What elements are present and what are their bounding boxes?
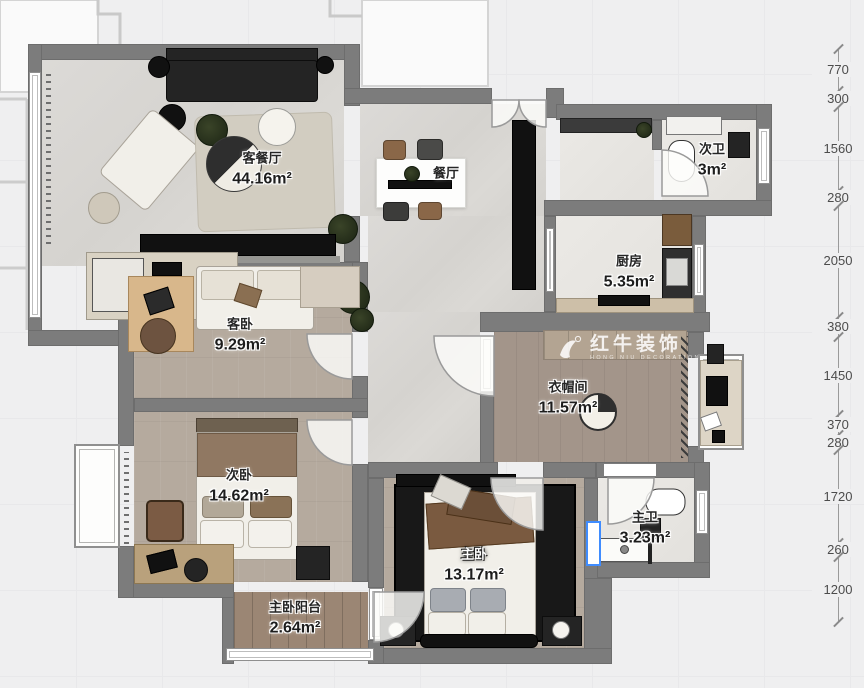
dimension-label: 1560 [812,141,864,156]
room-label-guest-bedroom: 客卧 9.29m² [215,314,266,355]
dimension-tick [833,332,844,343]
dimension-label: 260 [812,542,864,557]
wall[interactable] [352,464,368,582]
room-name: 客卧 [227,314,253,333]
room-label-kitchen: 厨房 5.35m² [604,251,655,292]
toilet[interactable] [668,140,695,182]
wall[interactable] [543,462,596,478]
dining-chair[interactable] [383,202,409,221]
room-name: 主卧阳台 [269,597,321,616]
plant[interactable] [350,308,374,332]
room-label-master-bedroom: 主卧 13.17m² [444,544,504,585]
desk-chair[interactable] [707,344,724,364]
room-name: 衣帽间 [548,377,587,396]
pouf[interactable] [88,192,120,224]
pillow [468,612,506,636]
dimension-tick [833,85,844,96]
pillow [428,612,466,636]
dimension-label: 1200 [812,582,864,597]
dimension-label: 370 [812,417,864,432]
wall[interactable] [480,312,710,332]
selected-door-leaf[interactable] [586,521,601,566]
window[interactable] [29,72,41,318]
armchair[interactable] [146,500,184,542]
dimension-tick [833,101,844,112]
room-name: 餐厅 [433,163,459,182]
pillow [470,588,506,612]
brand-name: 红牛装饰 [590,335,701,354]
neighbor-outline [0,99,27,330]
room-label-living-dining: 客餐厅 44.16m² [232,148,292,189]
room-name: 主卫 [632,507,658,526]
room-area: 5.35m² [604,274,655,292]
dimension-tick [833,552,844,563]
cooktop[interactable] [598,295,650,306]
room-area: 3.23m² [620,530,671,548]
shower-fixture[interactable] [728,132,750,158]
dimension-label: 380 [812,319,864,334]
room-area: 2.64m² [270,620,321,638]
room-label-dining: 餐厅 [433,163,459,182]
dining-chair[interactable] [418,202,442,220]
brand-subtitle: HONG NIU DECORATION [590,356,701,362]
dining-chair[interactable] [383,140,406,160]
neighbor-outline [98,0,120,46]
dimension-tick [833,617,844,628]
room-name: 主卧 [461,544,487,563]
bed-bench[interactable] [420,634,538,648]
room-name: 厨房 [616,251,642,270]
ottoman[interactable] [258,108,296,146]
brand-bull-logo-icon [556,333,586,363]
dimension-line [838,49,839,622]
door-leaf[interactable] [480,336,494,392]
dining-chair[interactable] [417,139,443,160]
pendant-lamp[interactable] [316,56,334,74]
room-name: 次卧 [226,465,252,484]
wall[interactable] [596,562,710,578]
room-name: 次卫 [699,139,725,158]
dimension-label: 300 [812,91,864,106]
bay-window[interactable] [74,444,120,548]
room-label-second-bedroom: 次卧 14.62m² [209,465,269,506]
window[interactable] [694,244,704,296]
desk-item [712,430,725,443]
dimension-label: 280 [812,190,864,205]
room-name: 客餐厅 [242,148,281,167]
wall[interactable] [368,648,612,664]
room-label-master-bath: 主卫 3.23m² [620,507,671,548]
monitor[interactable] [706,376,728,406]
tall-cabinet[interactable] [512,120,536,290]
dimension-tick [833,311,844,322]
table-lamp [388,622,404,638]
dimension-tick [833,44,844,55]
wall[interactable] [344,88,492,104]
dimension-tick [833,410,844,421]
dimension-label: 2050 [812,253,864,268]
window[interactable] [696,490,708,534]
kitchen-sink[interactable] [666,258,688,286]
floorplan-canvas[interactable]: 客餐厅 44.16m² 餐厅 次卫 3m² 厨房 5.35m² 客卧 9.29m… [0,0,864,688]
room-area: 9.29m² [215,337,266,355]
dimension-label: 770 [812,62,864,77]
appliance[interactable] [152,262,182,276]
table-lamp [552,621,570,639]
wall[interactable] [118,546,134,598]
dimension-tick [833,430,844,441]
balcony-window[interactable] [226,648,374,661]
pillow [430,588,466,612]
plant [636,122,652,138]
floor-hallway-lower[interactable] [368,312,480,462]
window[interactable] [758,128,770,184]
room-label-master-balcony: 主卧阳台 2.64m² [269,597,321,638]
dimension-tick [833,201,844,212]
dimension-label: 280 [812,435,864,450]
nightstand[interactable] [296,546,330,580]
wall[interactable] [368,478,384,588]
neighbor-outline [362,0,488,86]
desk-chair[interactable] [184,558,208,582]
curtain [46,74,51,244]
curtain [124,452,129,544]
wall[interactable] [134,398,368,412]
room-area: 11.57m² [539,400,598,418]
wall[interactable] [544,200,772,216]
room-area: 14.62m² [209,488,269,506]
side-table[interactable] [148,56,170,78]
dimension-tick [833,445,844,456]
door-opening[interactable] [604,464,656,476]
sofa[interactable] [166,60,318,102]
kitchen-shelf[interactable] [662,214,692,246]
dimension-tick [833,186,844,197]
dimension-label: 1450 [812,368,864,383]
watermark: 红牛装饰 HONG NIU DECORATION [556,333,706,363]
wall[interactable] [118,582,234,598]
bathroom-vanity[interactable] [666,116,722,135]
sliding-door[interactable] [546,228,554,292]
dimension-label: 1720 [812,489,864,504]
room-label-cloakroom: 衣帽间 11.57m² [539,377,598,418]
table-plant [404,166,420,182]
wall[interactable] [652,120,662,150]
room-label-guest-bath: 次卫 3m² [698,139,726,180]
room-area: 44.16m² [232,171,292,189]
cabinet[interactable] [300,266,360,308]
dimension-tick [833,538,844,549]
room-area: 13.17m² [444,567,504,585]
neighbor-outline [330,0,362,16]
pillow [248,520,292,548]
pouf[interactable] [140,318,176,354]
room-area: 3m² [698,162,726,180]
